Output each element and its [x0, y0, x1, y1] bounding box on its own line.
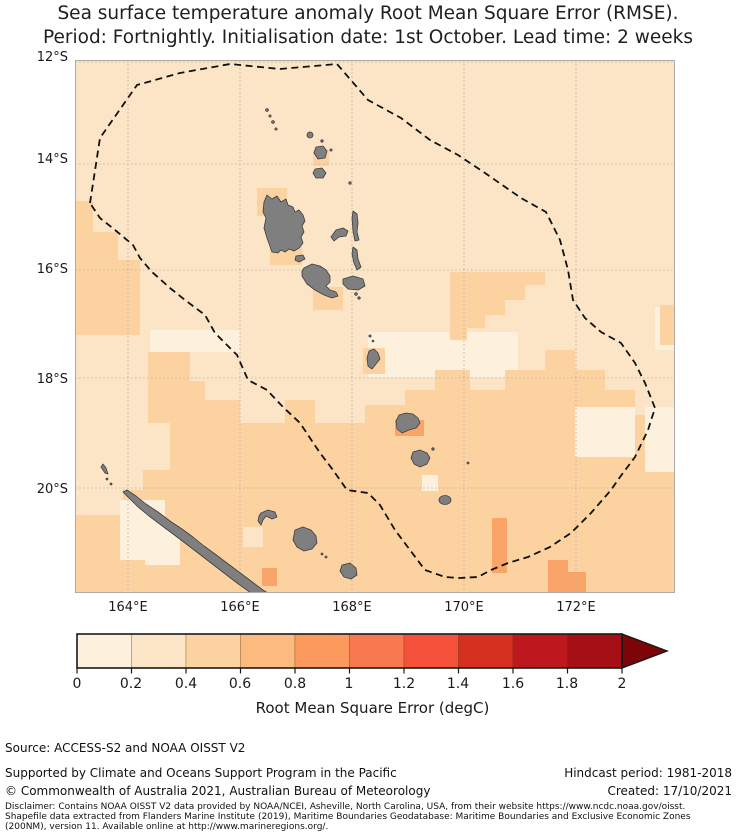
- cbtick-2: 2: [597, 676, 647, 692]
- island-torres-2: [269, 115, 271, 117]
- island-banks-speck: [330, 149, 332, 151]
- ytick-18s: 18°S: [18, 372, 68, 388]
- island-mota-lava: [307, 132, 313, 138]
- island-lopevi: [358, 297, 360, 299]
- created-text: Created: 17/10/2021: [607, 784, 732, 799]
- island-tiga: [321, 553, 323, 555]
- xtick-170e: 170°E: [434, 600, 494, 616]
- island-shepherd-2: [372, 340, 374, 342]
- title-line-2: Period: Fortnightly. Initialisation date…: [0, 26, 736, 50]
- island-tanna: [439, 496, 451, 505]
- cbtick-02: 0.2: [106, 676, 156, 692]
- rmse-patch-hole: [243, 527, 263, 547]
- cbtick-16: 1.6: [488, 676, 538, 692]
- title-line-1: Sea surface temperature anomaly Root Mea…: [0, 2, 736, 26]
- colorbar-segment: [568, 634, 623, 668]
- source-text: Source: ACCESS-S2 and NOAA OISST V2: [5, 741, 245, 756]
- colorbar-label: Root Mean Square Error (degC): [75, 699, 670, 717]
- colorbar-segments: [77, 634, 622, 668]
- disclaimer-line-2: Shapefile data extracted from Flanders M…: [5, 812, 735, 822]
- island-shepherd-1: [369, 335, 371, 337]
- colorbar-segment: [513, 634, 568, 668]
- island-paama: [355, 293, 358, 296]
- cbtick-06: 0.6: [215, 676, 265, 692]
- cbtick-0: 0: [52, 676, 102, 692]
- cbtick-14: 1.4: [433, 676, 483, 692]
- xtick-166e: 166°E: [210, 600, 270, 616]
- colorbar-arrow: [622, 634, 667, 668]
- xtick-172e: 172°E: [546, 600, 606, 616]
- island-mota: [321, 140, 323, 142]
- disclaimer-line-3: (200NM), version 11. Available online at…: [5, 822, 735, 832]
- colorbar-segment: [350, 634, 405, 668]
- island-belep-speck-2: [110, 483, 112, 485]
- island-torres-3: [272, 121, 275, 124]
- ytick-20s: 20°S: [18, 482, 68, 498]
- disclaimer-line-1: Disclaimer: Contains NOAA OISST V2 data …: [5, 802, 735, 812]
- map-canvas: [75, 60, 675, 593]
- colorbar: [70, 631, 680, 677]
- island-merelava: [349, 182, 351, 184]
- island-tiga-2: [325, 556, 327, 558]
- cbtick-12: 1.2: [379, 676, 429, 692]
- colorbar-segment: [295, 634, 350, 668]
- colorbar-segment: [241, 634, 296, 668]
- island-belep-speck-1: [106, 478, 108, 480]
- colorbar-segment: [186, 634, 241, 668]
- figure-title: Sea surface temperature anomaly Root Mea…: [0, 2, 736, 50]
- ytick-14s: 14°S: [18, 152, 68, 168]
- colorbar-segment: [77, 634, 132, 668]
- colorbar-segment: [132, 634, 187, 668]
- ytick-16s: 16°S: [18, 262, 68, 278]
- xtick-164e: 164°E: [98, 600, 158, 616]
- figure-root: { "title": { "line1": "Sea surface tempe…: [0, 0, 736, 839]
- colorbar-segment: [459, 634, 514, 668]
- island-speck-1: [432, 448, 434, 450]
- xtick-168e: 168°E: [322, 600, 382, 616]
- copyright-text: © Commonwealth of Australia 2021, Austra…: [5, 784, 430, 799]
- ytick-12s: 12°S: [18, 50, 68, 66]
- cbtick-18: 1.8: [542, 676, 592, 692]
- island-speck-2: [467, 462, 469, 464]
- cbtick-04: 0.4: [161, 676, 211, 692]
- colorbar-segment: [404, 634, 459, 668]
- island-torres-4: [275, 128, 277, 130]
- supported-text: Supported by Climate and Oceans Support …: [5, 766, 397, 781]
- cbtick-08: 0.8: [270, 676, 320, 692]
- hindcast-text: Hindcast period: 1981-2018: [564, 766, 732, 781]
- colorbar-ticks: [77, 668, 622, 674]
- island-torres-1: [266, 109, 269, 112]
- cbtick-1: 1: [324, 676, 374, 692]
